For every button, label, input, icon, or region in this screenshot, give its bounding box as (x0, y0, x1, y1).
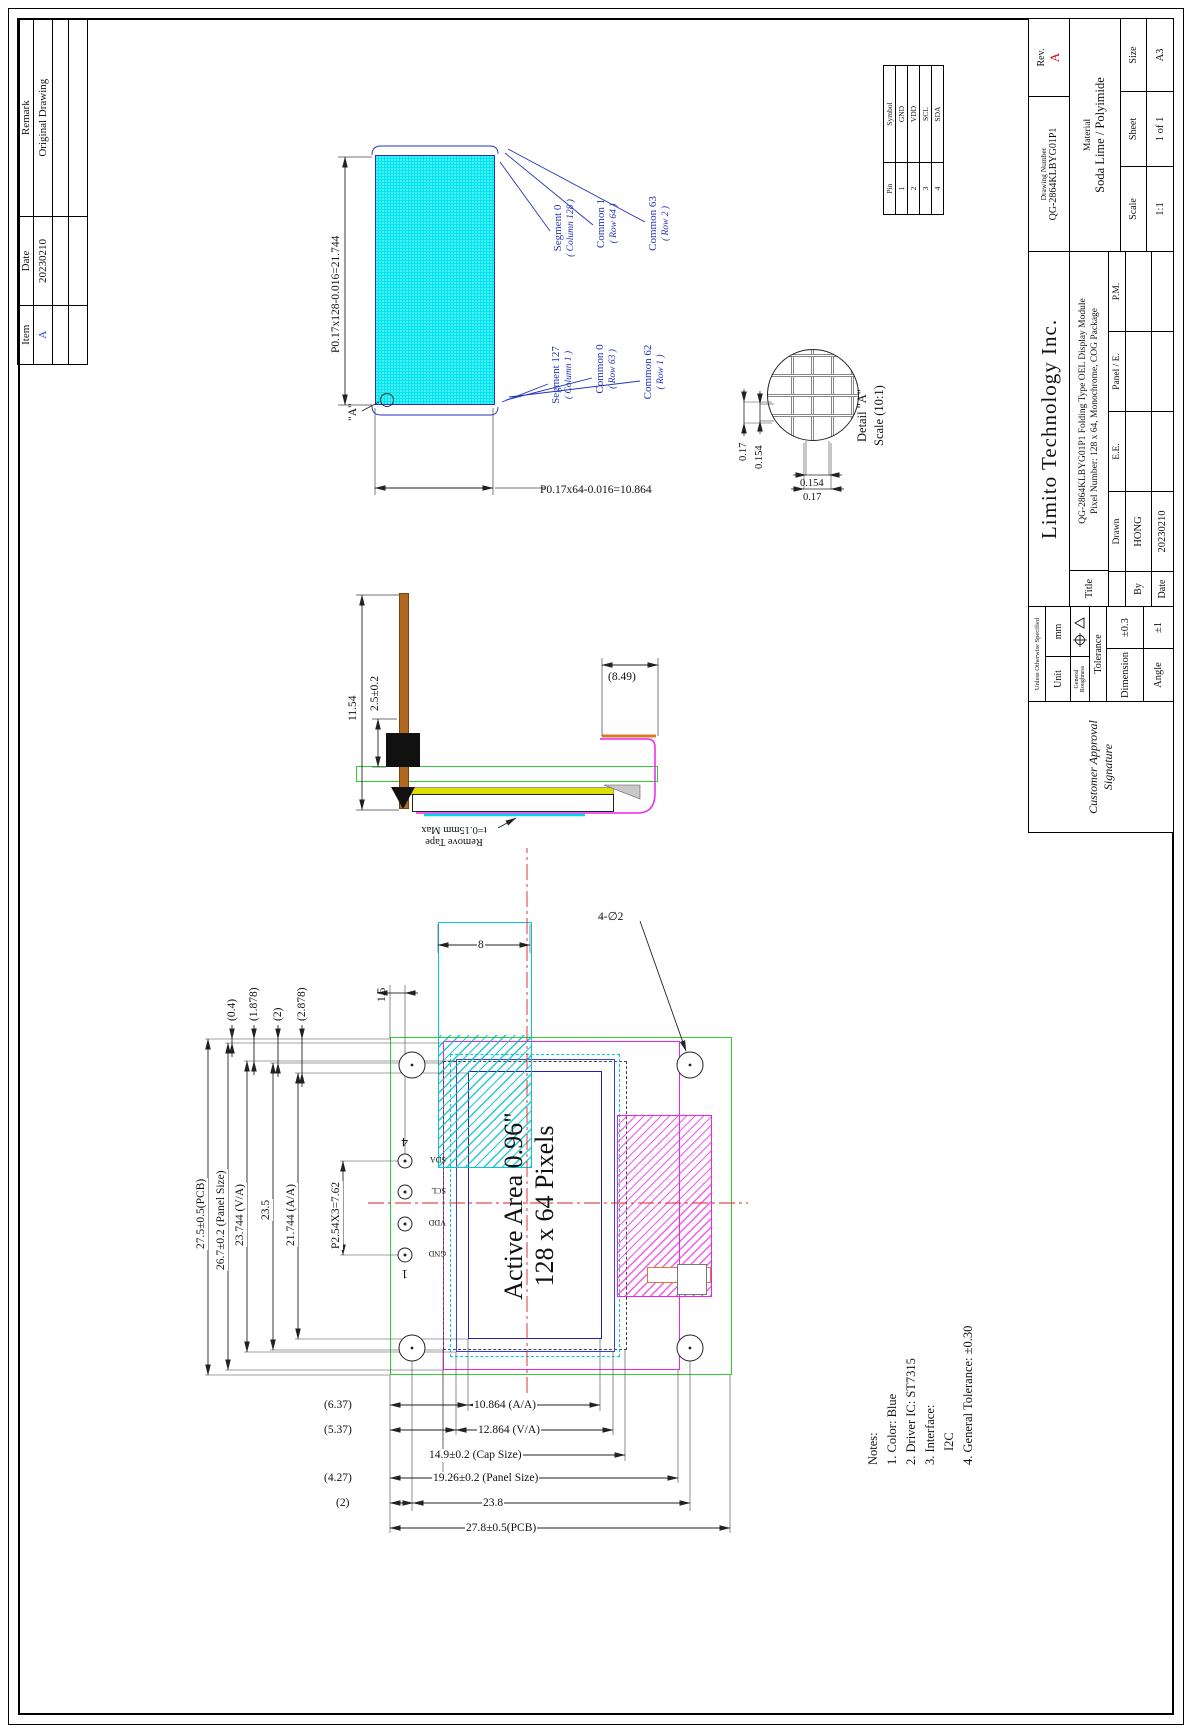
revision-item: A (34, 305, 53, 364)
side-view-linework (356, 595, 658, 828)
drawing-info-section: Drawing Number QG-2864KLBYG01P1 Rev. A M… (1029, 19, 1173, 251)
pin-2-number: 2 (908, 163, 920, 215)
dim-aa-offset: (6.37) (323, 1399, 353, 1412)
unless-otherwise-specified: Unless Otherwise Specified (1029, 607, 1046, 701)
dim-va-height: 12.864 (V/A) (477, 1424, 541, 1437)
rev-label: Rev. (1036, 49, 1047, 67)
material-box: Material Soda Lime / Polyimide (1070, 19, 1121, 251)
pin-4-number: 4 (932, 163, 944, 215)
sheet-label: Sheet (1121, 92, 1147, 166)
pin-1-number: 1 (896, 163, 908, 215)
dim-cap-height: 14.9±0.2 (Cap Size) (428, 1449, 523, 1462)
sheet-value: 1 of 1 (1147, 92, 1173, 166)
date-label: Date (1152, 572, 1173, 606)
dim-panel-height: 19.26±0.2 (Panel Size) (432, 1472, 539, 1485)
detail-a-dimensions (744, 389, 844, 489)
dim-panel-offset: (4.27) (323, 1472, 353, 1485)
pin-4-symbol: SDA (932, 66, 944, 163)
unit-value: mm (1046, 607, 1070, 656)
active-area-line1: Active Area 0.96" (498, 1073, 529, 1339)
size-label: Size (1121, 19, 1147, 91)
pin-1-symbol: GND (896, 66, 908, 163)
dim-offset-1878: (1.878) (248, 987, 261, 1021)
dim-va-width: 23.744 (V/A) (234, 1183, 247, 1247)
label-common-0-sub: ( Row 63 ) (607, 323, 620, 415)
detail-dim-017-h: 0.17 (737, 443, 750, 461)
note-item-1: 1. Color: Blue (883, 1326, 902, 1465)
side-dim-fpc: (8.49) (608, 671, 636, 684)
tape-note-line1: Remove Tape (408, 835, 500, 847)
pixel-view-dimensions (338, 157, 545, 495)
tape-note: Remove Tape t=0.15mm Max (408, 823, 500, 847)
pin-label-scl: SCL (431, 1184, 446, 1197)
material-value: Soda Lime / Polyimide (1093, 77, 1108, 193)
drawing-title: QG-2864KLBYG01P1 Folding Type OEL Displa… (1070, 252, 1108, 570)
drawing-number-value: QG-2864KLBYG01P1 (1048, 128, 1059, 221)
label-segment-127: Segment 127 ( Column 1 ) (550, 329, 575, 421)
detail-dim-0154-h: 0.154 (753, 445, 766, 469)
note-item-5: 4. General Tolerance: ±0.30 (959, 1326, 978, 1465)
company-title-section: Limito Technology Inc. Title QG-2864KLBY… (1029, 251, 1173, 606)
pin-number-1: 1 (402, 1268, 409, 1281)
revision-header-date: Date (18, 217, 34, 305)
angle-label: Angle (1144, 648, 1173, 701)
tolerance-label: Tolerance (1090, 607, 1107, 701)
dim-pixel-height: P0.17x64-0.016=10.864 (540, 484, 652, 497)
revision-table: Item Date Remark A 20230210 Original Dra… (17, 18, 88, 365)
tolerance-section: Unless Otherwise Specified Unit mm Gener… (1029, 606, 1173, 701)
pin-2-symbol: VDD (908, 66, 920, 163)
active-area-text: Active Area 0.96" 128 x 64 Pixels (498, 1073, 560, 1339)
drawn-label: Drawn (1109, 492, 1126, 571)
scale-value: 1:1 (1147, 167, 1173, 251)
dim-pin-pitch: P2.54X3=7.62 (330, 1181, 343, 1250)
label-common-62-name: Common 62 (642, 326, 655, 418)
scale-label: Scale (1121, 167, 1147, 251)
general-roughness-label: General Roughness (1071, 656, 1089, 701)
label-common-62-sub: ( Row 1 ) (655, 326, 668, 418)
by-label: By (1126, 572, 1152, 606)
customer-approval-line1: Customer Approval (1086, 720, 1101, 814)
detail-dim-017-v: 0.17 (803, 491, 821, 504)
detail-a-title: Detail "A" (856, 389, 869, 442)
dim-offset-04: (0.4) (226, 999, 239, 1021)
dim-offset-2878: (2.878) (296, 987, 309, 1021)
material-label: Material (1083, 119, 1093, 151)
active-area-line2: 128 x 64 Pixels (529, 1073, 560, 1339)
tape-note-line2: t=0.15mm Max (408, 823, 500, 835)
title-label: Title (1070, 570, 1108, 606)
drawing-sheet: P0.17x128-0.016=21.744 P0.17x64-0.016=10… (0, 0, 1192, 1733)
label-segment-127-sub: ( Column 1 ) (563, 329, 576, 421)
dimension-label: Dimension (1107, 648, 1143, 701)
label-common-0: Common 0 ( Row 63 ) (594, 323, 619, 415)
revision-empty-cell (53, 305, 69, 364)
detail-dim-0154-v: 0.154 (800, 477, 824, 490)
pm-label: P.M. (1109, 252, 1126, 331)
label-common-1: Common 1 ( Row 64 ) (595, 176, 620, 271)
customer-approval-line2: Signature (1101, 744, 1116, 790)
pin-label-sda: SDA (430, 1153, 446, 1166)
side-dim-header: 2.5±0.2 (369, 676, 382, 711)
note-item-3: 3. Interface: (921, 1326, 940, 1465)
detail-ref-label: "A" (347, 403, 360, 421)
rev-value: A (1047, 53, 1063, 62)
screenshot-root: { "colors": { "display_fill": "#00e6f0",… (0, 0, 1192, 1733)
dim-pcb-height: 27.8±0.5(PCB) (465, 1522, 537, 1535)
dim-va-offset: (5.37) (323, 1424, 353, 1437)
label-common-62: Common 62 ( Row 1 ) (642, 326, 667, 418)
drawing-number-label: Drawing Number (1039, 148, 1048, 201)
notes-block: Notes: 1. Color: Blue 2. Driver IC: ST73… (864, 1326, 978, 1465)
title-block: Customer Approval Signature Unless Other… (1028, 18, 1174, 833)
label-segment-0-name: Segment 0 (552, 178, 565, 278)
revision-header-item: Item (18, 305, 34, 364)
label-segment-0-sub: ( Column 128 ) (565, 178, 578, 278)
dim-cap-width: 23.5 (260, 1199, 273, 1221)
dimension-tolerance-value: ±0.3 (1107, 607, 1143, 648)
label-common-1-sub: ( Row 64 ) (608, 176, 621, 271)
holes-callout: 4-∅2 (598, 911, 623, 924)
dim-aa-width: 21.744 (A/A) (285, 1183, 298, 1247)
unit-label: Unit (1046, 656, 1070, 701)
drawing-number-box: Drawing Number QG-2864KLBYG01P1 (1029, 96, 1069, 251)
label-common-63: Common 63 ( Row 2 ) (647, 176, 672, 271)
label-common-0-name: Common 0 (594, 323, 607, 415)
customer-approval-box: Customer Approval Signature (1029, 701, 1173, 832)
label-common-1-name: Common 1 (595, 176, 608, 271)
dim-pin-edge: 1.5 (376, 988, 389, 1002)
dim-offset-2: (2) (272, 1008, 285, 1021)
panel-e-label: Panel / E. (1109, 332, 1126, 411)
ee-label: E.E. (1109, 412, 1126, 491)
pin-3-number: 3 (920, 163, 932, 215)
pin-label-gnd: GND (429, 1247, 446, 1260)
revision-date: 20230210 (34, 217, 53, 305)
dim-hole-pitch: 23.8 (482, 1497, 504, 1510)
dim-pcb-width: 27.5±0.5(PCB) (195, 1178, 208, 1250)
revision-empty-cell (69, 305, 88, 364)
pin-assignment-table: Pin Symbol 1GND 2VDD 3SCL 4SDA (883, 65, 944, 215)
drawn-date-value: 20230210 (1152, 492, 1173, 571)
label-segment-127-name: Segment 127 (550, 329, 563, 421)
revision-header-remark: Remark (18, 19, 34, 217)
roughness-symbol (1071, 607, 1089, 656)
side-dim-total: 11.54 (347, 696, 360, 721)
label-common-63-sub: ( Row 2 ) (660, 176, 673, 271)
pin-table-header-pin: Pin (884, 163, 896, 215)
rev-box: Rev. A (1029, 19, 1069, 96)
projection-symbol-icon (1072, 615, 1088, 649)
dim-pixel-width: P0.17x128-0.016=21.744 (330, 236, 343, 353)
notes-title: Notes: (864, 1326, 883, 1465)
company-name: Limito Technology Inc. (1029, 252, 1070, 606)
label-segment-0: Segment 0 ( Column 128 ) (552, 178, 577, 278)
size-value: A3 (1147, 19, 1173, 91)
drawing-title-line1: QG-2864KLBYG01P1 Folding Type OEL Displa… (1077, 298, 1089, 523)
note-item-2: 2. Driver IC: ST7315 (902, 1326, 921, 1465)
dim-aa-height: 10.864 (A/A) (473, 1399, 537, 1412)
pin-label-vdd: VDD (429, 1216, 446, 1229)
revision-remark: Original Drawing (34, 19, 53, 217)
dim-hole-offset: (2) (335, 1497, 350, 1510)
pin-3-symbol: SCL (920, 66, 932, 163)
pin-holes (398, 1154, 412, 1262)
drawing-title-line2: Pixel Number: 128 x 64, Monochrome, COG … (1089, 308, 1101, 514)
dim-fold-width: 8 (477, 939, 485, 952)
pin-table-header-symbol: Symbol (884, 66, 896, 163)
label-common-63-name: Common 63 (647, 176, 660, 271)
drawn-by-value: HONG (1126, 492, 1152, 571)
pin-number-4: 4 (402, 1136, 409, 1149)
detail-a-scale: Scale (10:1) (873, 385, 886, 446)
angle-tolerance-value: ±1 (1144, 607, 1173, 648)
note-item-3b: I2C (940, 1326, 959, 1465)
dim-panel-width: 26.7±0.2 (Panel Size) (215, 1169, 228, 1271)
